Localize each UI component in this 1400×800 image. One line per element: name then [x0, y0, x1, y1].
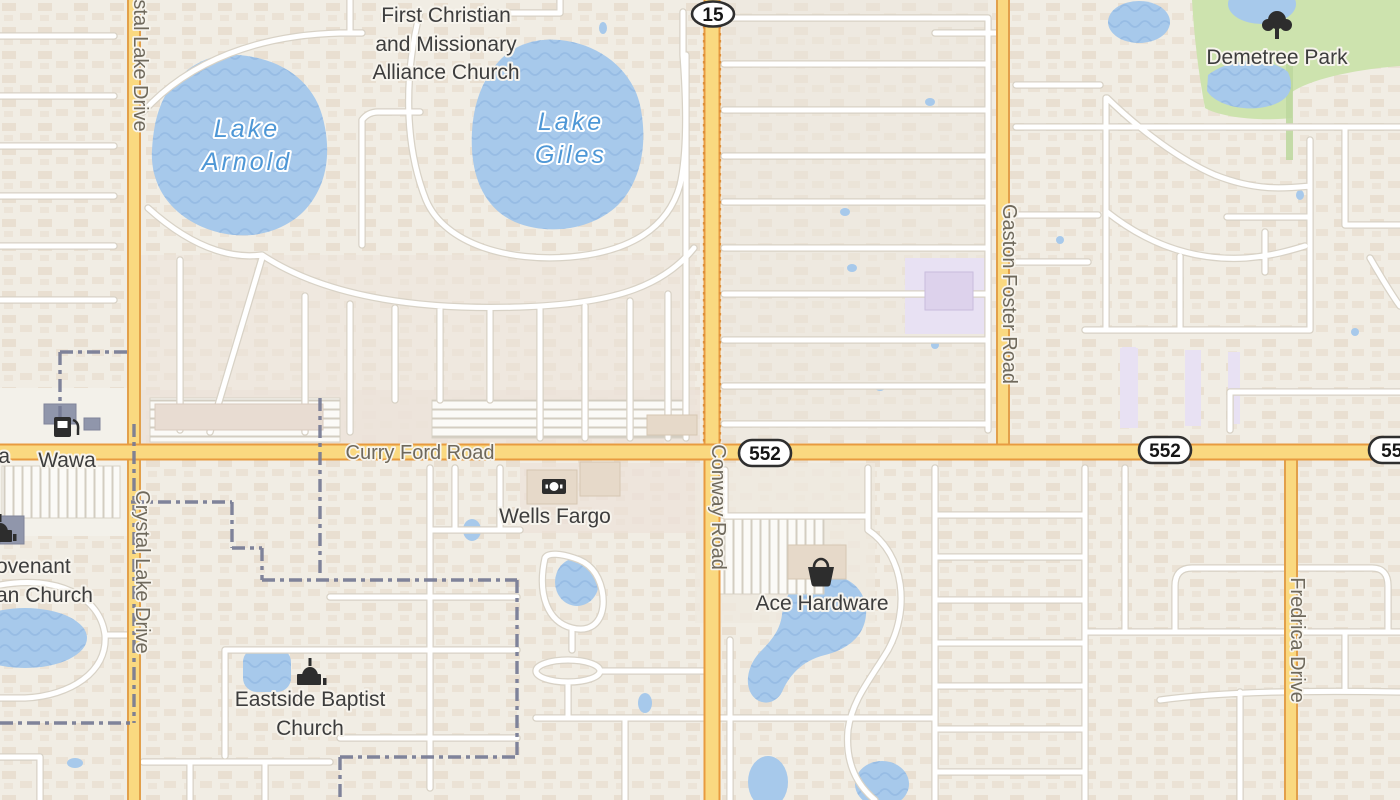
poi-label-edge-fragment: a: [0, 445, 10, 468]
poi-label-covenant-church[interactable]: an Church: [0, 584, 93, 607]
lake-label-arnold: Lake: [214, 115, 280, 143]
poi-label-ace-hardware[interactable]: Ace Hardware: [755, 592, 888, 615]
poi-label-covenant-church[interactable]: ovenant: [0, 555, 71, 578]
road-label-curry-ford: Curry Ford Road: [346, 442, 495, 464]
poi-label-first-christian[interactable]: First Christian: [381, 4, 511, 27]
poi-label-wells-fargo[interactable]: Wells Fargo: [499, 505, 611, 528]
road-label-crystal-lake: Crystal Lake Drive: [131, 490, 153, 653]
banknote-icon[interactable]: [542, 479, 566, 494]
route-552-shield: 552: [1369, 437, 1400, 463]
route-15-text: 15: [702, 5, 724, 26]
road-label-fredrica: Fredrica Drive: [1286, 577, 1308, 703]
route-552-shield: 552: [1139, 437, 1191, 463]
route-552-text: 552: [1149, 441, 1181, 462]
poi-label-wawa[interactable]: Wawa: [38, 449, 96, 472]
route-552-shield: 552: [739, 440, 791, 466]
map-viewport: First Christian and Missionary Alliance …: [0, 0, 1400, 800]
poi-label-first-christian[interactable]: and Missionary: [375, 33, 517, 56]
route-552-text: 552: [1381, 441, 1400, 462]
lake-label-giles: Lake: [538, 108, 604, 136]
map-canvas[interactable]: First Christian and Missionary Alliance …: [0, 0, 1400, 800]
poi-label-eastside-baptist[interactable]: Eastside Baptist: [235, 688, 386, 711]
poi-label-first-christian[interactable]: Alliance Church: [372, 61, 519, 84]
lake-label-arnold: Arnold: [200, 148, 292, 176]
road-label-conway: Conway Road: [707, 444, 729, 570]
road-label-gaston-foster: Gaston Foster Road: [998, 204, 1020, 384]
lake-label-giles: Giles: [535, 141, 607, 169]
route-552-text: 552: [749, 444, 781, 465]
route-15-shield: 15: [692, 2, 734, 27]
road-label-crystal-lake-top: Crystal Lake Drive: [129, 0, 151, 132]
poi-label-demetree-park[interactable]: Demetree Park: [1206, 46, 1348, 69]
parking-lot: [2, 466, 120, 518]
poi-label-eastside-baptist[interactable]: Church: [276, 717, 344, 740]
